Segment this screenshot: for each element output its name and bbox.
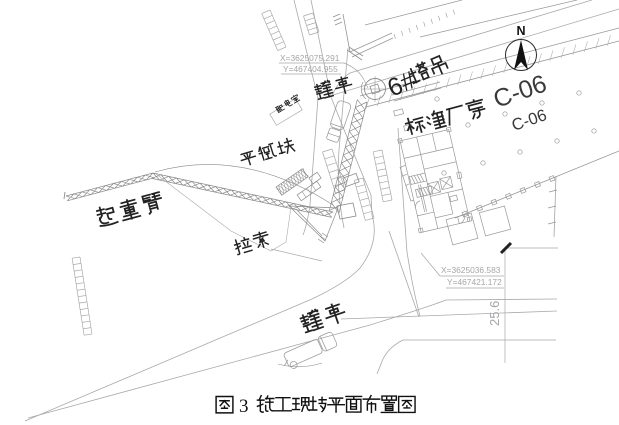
- svg-text:3: 3: [239, 396, 249, 417]
- svg-text:Y=467404.955: Y=467404.955: [283, 64, 338, 74]
- svg-text:Y=467421.172: Y=467421.172: [447, 277, 502, 287]
- svg-text:X=3625075.291: X=3625075.291: [280, 53, 340, 63]
- svg-text:N: N: [516, 24, 525, 38]
- svg-text:25.6: 25.6: [487, 301, 502, 326]
- svg-text:X=3625036.583: X=3625036.583: [441, 265, 501, 275]
